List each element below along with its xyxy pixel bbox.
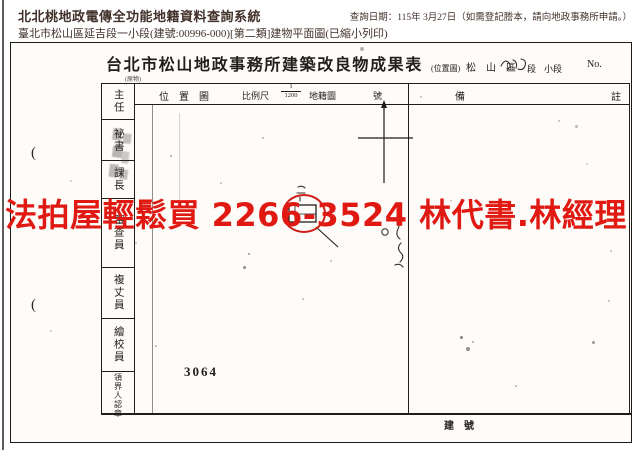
role-label: 主任: [112, 89, 123, 114]
xiaoduan-label: 小段: [544, 62, 562, 75]
role-label: 複丈員: [112, 274, 123, 312]
location-map-paren-label: (位置圖): [431, 63, 460, 74]
role-label: 領界人認章: [114, 373, 122, 418]
scan-noise-speck: [50, 330, 52, 332]
table-bottom-line: [101, 413, 631, 415]
scan-noise-speck: [420, 96, 422, 98]
building-no-label: 建 號: [444, 417, 474, 432]
margin-mark: (: [31, 145, 36, 162]
role-cell: 複丈員: [101, 268, 134, 319]
remarks-label-right: 註: [611, 88, 621, 103]
role-cell: 領界人認章: [101, 372, 134, 419]
form-title-note: (原物): [125, 74, 141, 83]
scan-noise-speck: [586, 163, 588, 165]
lot-number: 3064: [184, 364, 218, 380]
scan-noise-speck: [70, 180, 72, 182]
cadastral-map-label: 地籍圖: [309, 89, 336, 102]
table-right-line: [629, 83, 630, 413]
scan-noise-speck: [262, 137, 264, 139]
scan-noise-speck: [248, 253, 250, 255]
scale-numerator: 1: [281, 83, 301, 92]
map-faint-dashed-line: [179, 113, 180, 203]
scan-noise-speck: [220, 182, 222, 184]
handwritten-scribble-title: [499, 56, 533, 72]
role-cell: 繪校員: [101, 319, 134, 372]
no-label: No.: [587, 59, 602, 70]
role-label: 繪校員: [112, 326, 123, 364]
table-top-line: [101, 83, 629, 84]
map-inner-left-line: [152, 104, 153, 413]
form-title: 台北市松山地政事務所建築改良物成果表: [106, 51, 423, 75]
scale-fraction: 1 1200: [281, 83, 301, 100]
scan-noise-speck: [330, 260, 332, 262]
scale-denominator: 1200: [281, 92, 301, 100]
scanned-document: 台北市松山地政事務所建築改良物成果表 (原物) (位置圖) 松 山 區 段 小段…: [10, 42, 632, 443]
document-subtitle: 臺北市松山區延吉段一小段(建號:00996-000)[第二類]建物平面圖(已縮小…: [18, 25, 388, 41]
scan-noise-speck: [558, 120, 560, 122]
remarks-label-left: 備: [455, 88, 465, 103]
role-cell: 主任: [101, 83, 134, 120]
scan-noise-speck: [135, 242, 137, 244]
scan-noise-speck: [592, 341, 595, 344]
scan-noise-speck: [466, 347, 470, 351]
scan-noise-speck: [515, 385, 517, 387]
scan-page-edge: [2, 0, 4, 450]
scan-noise-speck: [610, 250, 612, 252]
scan-noise-speck: [243, 266, 246, 269]
scan-noise-speck: [575, 125, 578, 128]
scan-noise-speck: [170, 155, 172, 157]
scan-noise-speck: [360, 47, 364, 51]
scan-noise-speck: [472, 341, 474, 343]
margin-mark: (: [31, 297, 36, 314]
query-date: 查詢日期：115年 3月27日（如需登記謄本，請向地政事務所申請。）: [350, 9, 632, 23]
survey-cross-mark: [351, 98, 421, 193]
realtor-watermark: 法拍屋輕鬆買 2266-3524 林代書.林經理: [5, 195, 639, 235]
scan-noise-speck: [460, 336, 463, 339]
scan-noise-speck: [302, 298, 304, 300]
scan-noise-speck: [155, 345, 157, 347]
location-map-header: 位 置 圖: [159, 88, 209, 103]
scan-noise-speck: [608, 300, 610, 302]
scale-label: 比例尺: [242, 89, 269, 102]
system-title: 北北桃地政電傳全功能地籍資料查詢系統: [18, 6, 261, 25]
